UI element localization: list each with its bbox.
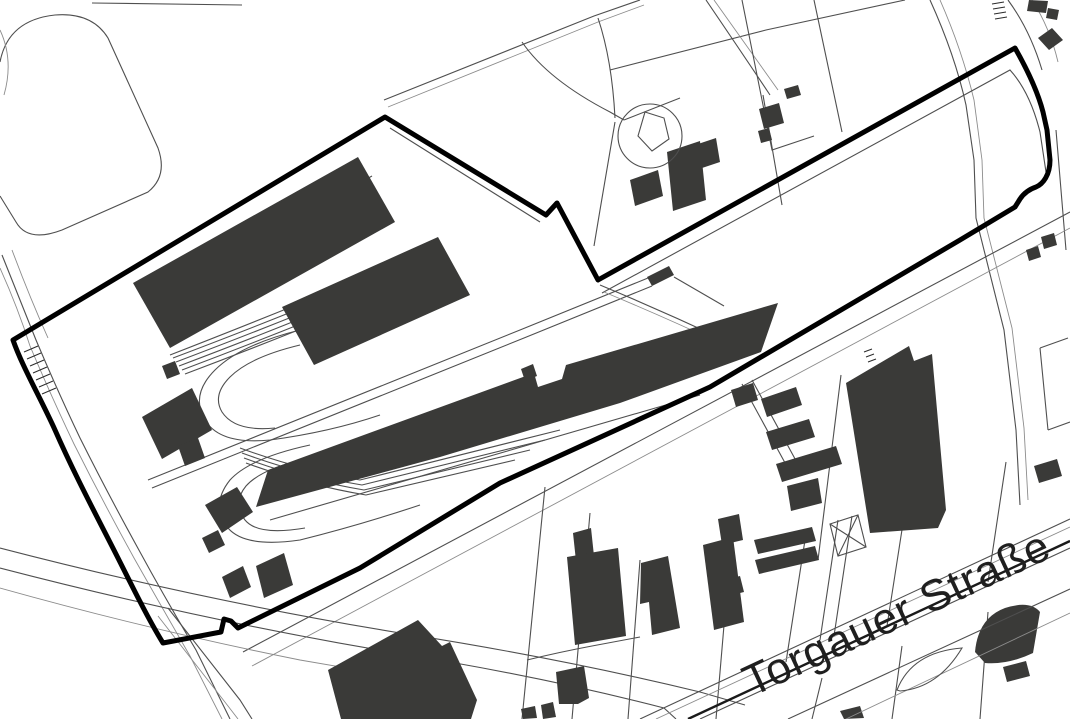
circular-tank-feature <box>618 104 682 168</box>
building-small-square <box>162 361 180 379</box>
building-tower-body <box>567 548 626 645</box>
building-row-bar <box>776 446 842 482</box>
building-east-small <box>1034 459 1062 483</box>
parcel-line <box>714 0 778 90</box>
parcel-line <box>522 487 545 719</box>
parcel-line <box>628 560 640 719</box>
building-square-sw <box>205 487 253 533</box>
parcel-line <box>384 0 640 100</box>
tick-marks <box>864 349 876 362</box>
building-column-south <box>703 537 744 630</box>
building-small-parallelogram <box>647 266 674 286</box>
building-row-bar <box>731 383 758 407</box>
building-small-se <box>1003 661 1030 682</box>
building-small-sw <box>222 566 251 598</box>
building-north-small <box>784 85 801 99</box>
parcel-line <box>388 5 644 107</box>
building-ne-corner <box>1027 0 1048 13</box>
building-notched-sw <box>256 553 293 598</box>
building-ne-corner <box>1046 8 1059 20</box>
parcel-line <box>0 15 161 235</box>
tank-inner-polygon <box>638 112 669 151</box>
building-tiny-bottom <box>541 702 556 719</box>
micro-label-hatch-left <box>24 346 56 394</box>
building-row-bar <box>766 419 815 450</box>
parcel-line <box>610 0 905 70</box>
building-ne-diamond <box>1038 28 1063 50</box>
map-drawing: Torgauer Straße <box>0 0 1070 719</box>
building-l-shape-south <box>640 556 680 635</box>
site-plan-map: Torgauer Straße <box>0 0 1070 719</box>
siding-track <box>674 277 724 306</box>
parcel-line <box>598 18 615 118</box>
boundary-layer <box>13 48 1050 643</box>
building-tall-east-hall <box>846 346 946 533</box>
traffic-island-outline <box>897 648 962 691</box>
parcel-line <box>706 0 770 95</box>
building-east-tiny <box>1026 246 1041 261</box>
inner-strip-line <box>390 128 540 222</box>
building-row-bar <box>761 387 802 417</box>
building-small-bottom <box>556 666 589 704</box>
building-bottom-center-hall <box>328 620 477 719</box>
parcel-line <box>594 122 615 246</box>
parcel-line <box>522 42 624 120</box>
parcel-line <box>602 70 1046 293</box>
parcel-line <box>814 0 842 132</box>
road-edge <box>92 3 242 5</box>
building-small-south <box>787 478 822 511</box>
building-east-tiny <box>1041 233 1057 249</box>
building-small-sw <box>202 530 225 553</box>
site-boundary-outline <box>13 48 1050 643</box>
micro-label-hatch-topright <box>992 2 1007 19</box>
parcel-line <box>1040 338 1070 430</box>
road-edge <box>1056 130 1066 250</box>
building-north-small <box>759 103 784 129</box>
parcel-line <box>0 30 8 95</box>
building-column-south <box>718 514 743 545</box>
building-t-shape-left-arm <box>630 170 663 206</box>
building-rounded-se <box>975 605 1040 663</box>
